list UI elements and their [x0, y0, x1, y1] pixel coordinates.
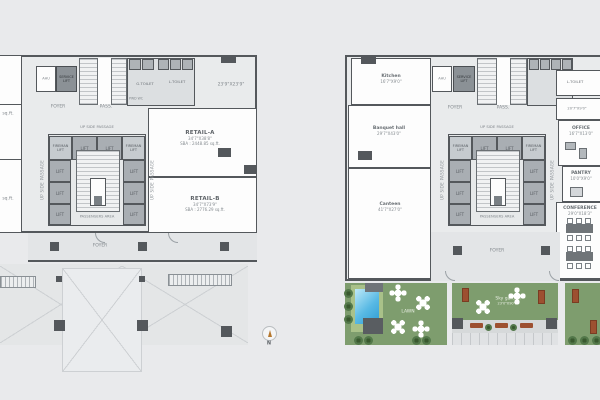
shrub-icon: [344, 315, 353, 324]
column: [452, 318, 463, 329]
bench: [495, 323, 508, 328]
shrub-icon: [592, 336, 600, 345]
passengers-area-label: PASSENGERS AREA: [80, 214, 115, 219]
right-floor-plan: Kitchen 16'7"X9'0" Banquet hall 29'7"X43…: [300, 0, 600, 400]
office-desk: [565, 142, 576, 150]
compass-n-label: N: [267, 340, 271, 348]
wc-stall: [540, 59, 550, 70]
retail-a-label: RETAIL-A 34'7"X38'8" SBA : 2448.85 sq.ft…: [180, 130, 220, 146]
conference-table: [566, 252, 593, 261]
office-desk: [579, 148, 587, 159]
conference-chair: [567, 218, 573, 224]
foyer-label: FOYER: [448, 106, 463, 113]
planter-box: [572, 289, 579, 303]
kitchen-dim: 16'7"X9'0": [380, 79, 401, 84]
banquet-hall-dim: 29'7"X43'0": [373, 131, 405, 136]
canteen-room: [348, 168, 431, 279]
conference-chair: [567, 246, 573, 252]
wc-stall: [551, 59, 561, 70]
lift-label: LIFT: [56, 212, 64, 217]
passengers-area-label: PASSENGERS AREA: [480, 214, 515, 219]
left-edge-room-bottom-label: sq.ft.: [2, 197, 13, 204]
lift-cell: LIFT: [49, 204, 71, 225]
column: [220, 242, 229, 251]
shrub-icon: [422, 336, 431, 345]
lift-cell: LIFT: [449, 182, 471, 204]
office-label: OFFICE 16'7"X13'0": [569, 126, 593, 136]
shrub-icon: [412, 336, 421, 345]
wc-stall: [170, 59, 181, 70]
lawn-label: LAWN: [401, 310, 414, 315]
foyer-label: FOYER: [51, 105, 66, 112]
ahu-label: AHU: [42, 76, 50, 81]
lift-cell: LIFT: [523, 160, 545, 182]
shrub-icon: [364, 336, 373, 345]
wall-block: [358, 151, 372, 160]
core-elevator-door: [94, 196, 102, 205]
left-edge-room-mid-label: sq.ft.: [2, 112, 13, 119]
wall-block: [244, 165, 256, 174]
fireman-lift-label: FIREMAN LIFT: [450, 144, 471, 152]
lift-label: LIFT: [456, 191, 464, 196]
wc-stall: [129, 59, 141, 70]
umbrella-table-icon: [509, 288, 526, 305]
bench: [470, 323, 483, 328]
planter-box: [590, 320, 597, 334]
wall-block: [221, 55, 236, 63]
lift-cell: LIFT: [523, 204, 545, 225]
ahu-label: AHU: [438, 76, 446, 81]
entry-steps-left: [0, 276, 36, 288]
staircase-landing: [496, 58, 511, 105]
shrub-icon: [510, 324, 517, 331]
column: [56, 276, 62, 282]
conference-chair: [576, 218, 582, 224]
lift-cell: LIFT: [123, 160, 145, 182]
pass-label: PASS.: [100, 105, 113, 112]
conference-chair: [576, 263, 582, 269]
up-side-passage-left-label: UP SIDE PASSAGE: [440, 160, 445, 200]
column: [138, 242, 147, 251]
conference-chair: [567, 235, 573, 241]
entrance-foyer-label: FOYER: [93, 244, 108, 251]
conference-chair: [585, 246, 591, 252]
wc-stall: [142, 59, 154, 70]
canteen-label: Canteen 41'7"X27'0": [378, 202, 402, 212]
l-toilet-label: L.TOILET: [567, 79, 584, 85]
lift-label: LIFT: [456, 212, 464, 217]
banquet-hall-label: Banquet hall 29'7"X43'0": [373, 126, 405, 136]
conference-label: CONFERENCE 29'0"X18'3": [563, 206, 597, 216]
store-room-dim: 20'7"X9'0": [567, 106, 586, 111]
fireman-lift-label: FIREMAN LIFT: [123, 144, 144, 152]
wc-stall: [158, 59, 169, 70]
fireman-lift-label: FIREMAN LIFT: [50, 144, 71, 152]
lift-label: LIFT: [530, 191, 538, 196]
conference-chair: [585, 235, 591, 241]
conference-chair: [576, 246, 582, 252]
lift-cell: LIFT: [49, 160, 71, 182]
fireman-lift-cell: FIREMAN LIFT: [49, 136, 72, 160]
upper-foyer-label: FOYER: [490, 249, 505, 256]
floor-plans-canvas: sq.ft. sq.ft. AHU SERVICE LIFT G.TOILET …: [0, 0, 600, 400]
up-side-passage-right-label: UP SIDE PASSAGE: [150, 160, 155, 200]
column: [54, 320, 65, 331]
umbrella-table-icon: [413, 321, 430, 338]
fireman-lift-cell: FIREMAN LIFT: [449, 136, 472, 160]
wc-stall: [562, 59, 572, 70]
up-side-passage-left-label: UP SIDE PASSAGE: [40, 160, 45, 200]
fireman-lift-label: FIREMAN LIFT: [523, 144, 544, 152]
service-lift: SERVICE LIFT: [56, 66, 77, 92]
up-side-passage-label: UP SIDE PASSAGE: [480, 124, 514, 130]
planter-box: [462, 288, 469, 302]
lift-label: LIFT: [130, 212, 138, 217]
wall-block: [218, 148, 231, 157]
column: [453, 246, 462, 255]
pass-label: PASS.: [497, 106, 510, 113]
lift-cell: LIFT: [449, 204, 471, 225]
shrub-icon: [580, 336, 589, 345]
wc-stall: [529, 59, 539, 70]
office-dim: 16'7"X13'0": [569, 131, 593, 136]
lift-cell: LIFT: [49, 182, 71, 204]
conference-chair: [585, 263, 591, 269]
pantry-dim: 10'0"X9'0": [570, 176, 591, 181]
lift-label: LIFT: [130, 191, 138, 196]
lift-label: LIFT: [56, 191, 64, 196]
retail-b-area: SBA : 2776.29 sq.ft.: [185, 207, 225, 212]
conference-chair: [576, 235, 582, 241]
entry-steps-right: [168, 274, 232, 286]
up-side-passage-label: UP SIDE PASSAGE: [80, 124, 114, 130]
up-side-passage-right-label: UP SIDE PASSAGE: [550, 160, 555, 200]
compass-needle-icon: [268, 330, 272, 337]
garden-steps: [452, 333, 558, 345]
lift-cell: LIFT: [523, 182, 545, 204]
umbrella-table-icon: [390, 285, 407, 302]
staircase-landing: [97, 58, 112, 105]
fireman-lift-cell: FIREMAN LIFT: [122, 136, 145, 160]
lift-label: LIFT: [530, 212, 538, 217]
g-toilet-label: G.TOILET: [136, 81, 153, 87]
lift-cell: LIFT: [449, 160, 471, 182]
shrub-icon: [485, 324, 492, 331]
lift-label: LIFT: [530, 169, 538, 174]
shrub-icon: [344, 302, 353, 311]
lawn-name: LAWN: [401, 310, 414, 315]
lift-label: LIFT: [56, 169, 64, 174]
core-elevator-door: [494, 196, 502, 205]
shrub-icon: [344, 289, 353, 298]
column: [50, 242, 59, 251]
column: [221, 326, 232, 337]
conference-dim: 29'0"X18'3": [563, 211, 597, 216]
wall-block: [361, 56, 376, 64]
entry-dim-label: 23'9"X23'9": [218, 83, 245, 90]
kitchen-label: Kitchen 16'7"X9'0": [380, 74, 401, 84]
conference-table: [566, 224, 593, 233]
pantry-table: [570, 187, 583, 197]
conference-chair: [585, 218, 591, 224]
lift-label: LIFT: [456, 169, 464, 174]
north-arrow-icon: [262, 326, 277, 341]
pool-platform: [365, 283, 383, 292]
retail-a-area: SBA : 2448.85 sq.ft.: [180, 141, 220, 146]
lift-cell: LIFT: [123, 182, 145, 204]
bench: [520, 323, 533, 328]
l-toilet-label: L.TOILET: [169, 79, 186, 85]
shrub-icon: [354, 336, 363, 345]
planter-box: [538, 290, 545, 304]
lift-cell: LIFT: [123, 204, 145, 225]
left-edge-room-top: [0, 55, 22, 106]
lift-label: LIFT: [130, 169, 138, 174]
pwd-wc-label: PWD WC: [129, 97, 143, 102]
column: [139, 276, 145, 282]
pantry-label: PANTRY 10'0"X9'0": [570, 171, 591, 181]
wc-stall: [182, 59, 193, 70]
pool-platform: [363, 318, 383, 334]
service-lift: SERVICE LIFT: [453, 66, 475, 92]
column: [541, 246, 550, 255]
shrub-icon: [568, 336, 577, 345]
service-lift-label: SERVICE LIFT: [57, 75, 76, 83]
retail-b-label: RETAIL-B 34'7"X73'9" SBA : 2776.29 sq.ft…: [185, 196, 225, 212]
column: [546, 318, 557, 329]
porch-canopy: [62, 268, 142, 372]
conference-chair: [567, 263, 573, 269]
left-floor-plan: sq.ft. sq.ft. AHU SERVICE LIFT G.TOILET …: [0, 0, 300, 400]
canteen-dim: 41'7"X27'0": [378, 207, 402, 212]
service-lift-label: SERVICE LIFT: [454, 75, 474, 83]
column: [137, 320, 148, 331]
fireman-lift-cell: FIREMAN LIFT: [522, 136, 545, 160]
